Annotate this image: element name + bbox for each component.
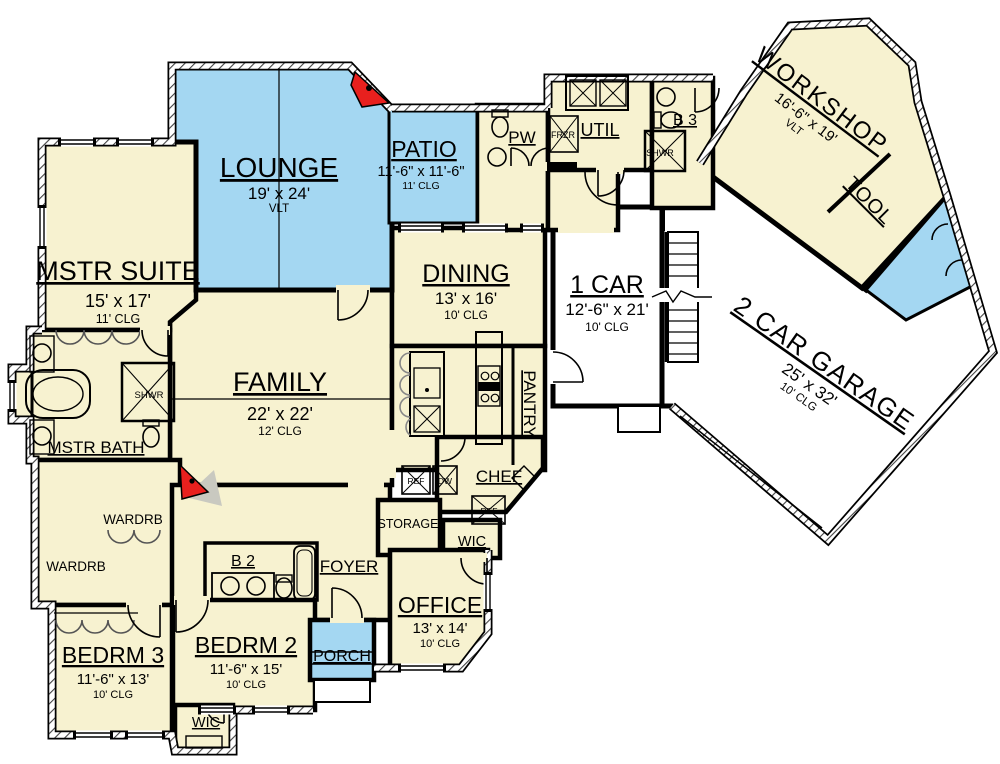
window-glyph xyxy=(58,138,96,147)
family-dims: 22' x 22' xyxy=(247,404,313,424)
mstr-suite-clg: 11' CLG xyxy=(96,312,141,326)
window-glyph xyxy=(38,205,47,249)
util-name: UTIL xyxy=(580,120,619,140)
wardrb-lower-label: WARDRB xyxy=(46,559,106,574)
one-car-dims: 12'-6" x 21' xyxy=(565,300,648,319)
bedrm3-name: BEDRM 3 xyxy=(62,642,164,668)
lounge-name: LOUNGE xyxy=(220,152,338,183)
window-glyph xyxy=(73,731,113,740)
wardrb-upper-label: WARDRB xyxy=(103,512,163,527)
family-name: FAMILY xyxy=(233,367,327,397)
office-name: OFFICE xyxy=(398,592,482,618)
dining-dims: 13' x 16' xyxy=(435,289,497,308)
one-car-stoop xyxy=(618,406,660,432)
shwr-b3-label: SHWR xyxy=(646,148,674,158)
mstr-suite-dims: 15' x 17' xyxy=(85,291,151,311)
window-glyph xyxy=(398,224,444,233)
b2-name: B 2 xyxy=(231,553,255,570)
ref-chef-label: REF xyxy=(481,506,498,516)
window-glyph xyxy=(125,731,165,740)
one-car-name: 1 CAR xyxy=(570,271,644,299)
chef-name: CHEF xyxy=(476,467,522,486)
lounge-dims: 19' x 24' xyxy=(248,184,310,203)
wic-bedrm2-label: WIC xyxy=(192,715,220,731)
storage-label: STORAGE xyxy=(378,517,439,531)
dining-clg: 10' CLG xyxy=(444,308,488,322)
b3-floor xyxy=(652,78,713,208)
bedrm3-dims: 11'-6" x 13' xyxy=(77,671,150,688)
window-glyph xyxy=(198,706,236,715)
bedrm2-dims: 11'-6" x 15' xyxy=(210,661,283,678)
b3-name: B 3 xyxy=(673,112,697,129)
office-dims: 13' x 14' xyxy=(413,620,468,637)
window-glyph xyxy=(398,664,446,673)
bedrm2-name: BEDRM 2 xyxy=(195,632,297,658)
family-clg: 12' CLG xyxy=(258,424,302,438)
one-car-clg: 10' CLG xyxy=(585,320,629,334)
shwr-mstr-label: SHWR xyxy=(134,390,163,401)
patio-name: PATIO xyxy=(391,136,457,162)
patio-dims: 11'-6" x 11'-6" xyxy=(377,164,464,180)
floor-plan-canvas: MSTR SUITE 15' x 17' 11' CLG LOUNGE 19' … xyxy=(0,0,1000,764)
mstr-suite-name: MSTR SUITE xyxy=(36,256,200,286)
bedrm3-floor xyxy=(52,605,172,735)
patio-clg: 11' CLG xyxy=(402,180,439,192)
pantry-name: PANTRY xyxy=(520,370,539,437)
window-glyph xyxy=(462,224,508,233)
window-glyph xyxy=(252,706,290,715)
dining-name: DINING xyxy=(422,260,510,288)
porch-name: PORCH xyxy=(313,648,371,665)
window-glyph xyxy=(116,138,154,147)
dw-label: DW xyxy=(438,476,452,486)
ref-kitchen-label: REF xyxy=(408,476,425,486)
bedrm3-clg: 10' CLG xyxy=(93,689,133,701)
pw-name: PW xyxy=(508,128,535,147)
room-label-pantry: PANTRY xyxy=(520,370,539,437)
entry-threshold xyxy=(549,162,577,170)
frzr-label: FRZR xyxy=(551,130,575,140)
window-glyph xyxy=(8,380,17,412)
floor-plan-drawing: MSTR SUITE 15' x 17' 11' CLG LOUNGE 19' … xyxy=(0,0,1000,764)
window-glyph xyxy=(484,572,493,612)
bedrm2-clg: 10' CLG xyxy=(226,679,266,691)
wic-office-label: WIC xyxy=(458,534,486,550)
porch-step xyxy=(314,680,370,702)
office-clg: 10' CLG xyxy=(420,638,460,650)
mstr-bath-name: MSTR BATH xyxy=(48,438,145,457)
foyer-name: FOYER xyxy=(320,557,379,576)
entry-hall-floor xyxy=(548,168,618,230)
lounge-clg: VLT xyxy=(269,203,289,215)
window-glyph xyxy=(520,224,544,233)
